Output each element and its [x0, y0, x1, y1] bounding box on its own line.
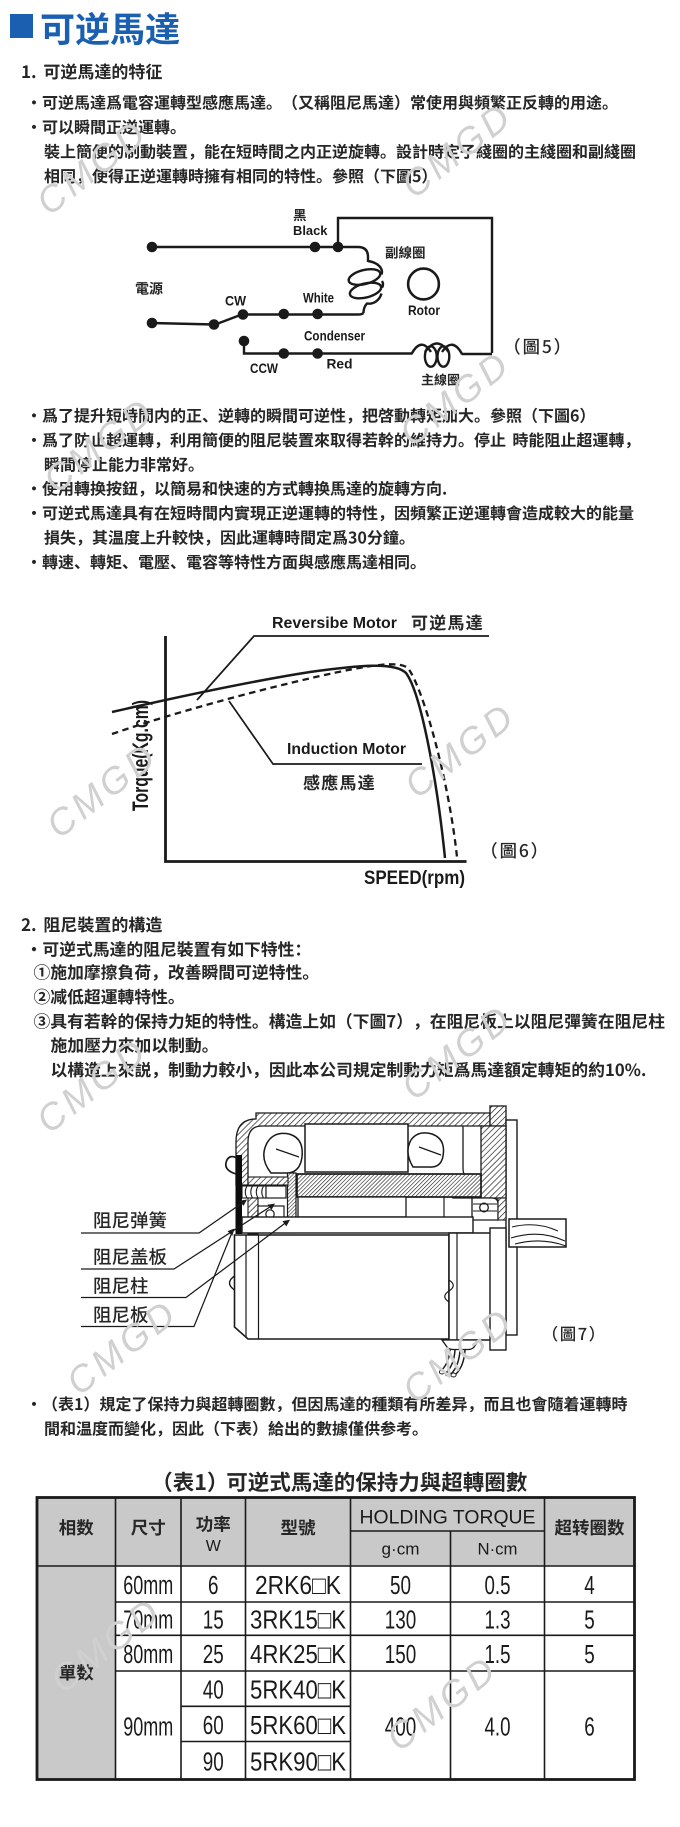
- svg-text:Condenser: Condenser: [304, 329, 366, 344]
- svg-text:1.3: 1.3: [485, 1607, 511, 1635]
- svg-text:25: 25: [203, 1641, 224, 1669]
- svg-text:90mm: 90mm: [123, 1713, 173, 1741]
- svg-text:CMGD: CMGD: [397, 694, 524, 806]
- svg-text:5RK90□K: 5RK90□K: [250, 1749, 346, 1777]
- svg-text:Rotor: Rotor: [408, 302, 440, 318]
- svg-text:6: 6: [208, 1572, 219, 1600]
- svg-text:5RK60□K: 5RK60□K: [250, 1712, 346, 1740]
- svg-text:Induction Motor: Induction Motor: [287, 741, 406, 758]
- svg-text:5RK40□K: 5RK40□K: [250, 1677, 346, 1705]
- svg-text:Black: Black: [293, 223, 328, 238]
- svg-text:4: 4: [584, 1572, 595, 1600]
- svg-text:3RK15□K: 3RK15□K: [250, 1607, 346, 1635]
- svg-text:130: 130: [385, 1607, 417, 1635]
- svg-text:4.0: 4.0: [485, 1713, 511, 1741]
- svg-text:SPEED(rpm): SPEED(rpm): [364, 868, 465, 889]
- svg-text:CW: CW: [225, 293, 247, 309]
- svg-text:6: 6: [584, 1713, 595, 1741]
- svg-text:Reversibe Motor: Reversibe Motor: [272, 615, 397, 632]
- svg-text:60: 60: [203, 1712, 224, 1740]
- svg-text:50: 50: [390, 1572, 411, 1600]
- svg-text:5: 5: [584, 1641, 595, 1669]
- svg-text:5: 5: [584, 1607, 595, 1635]
- svg-text:N·cm: N·cm: [478, 1540, 518, 1559]
- svg-text:g·cm: g·cm: [382, 1540, 420, 1559]
- svg-text:CMGD: CMGD: [36, 389, 163, 501]
- svg-text:HOLDING TORQUE: HOLDING TORQUE: [360, 1508, 536, 1529]
- svg-text:90: 90: [203, 1749, 224, 1777]
- svg-text:White: White: [303, 290, 334, 306]
- svg-text:15: 15: [203, 1607, 224, 1635]
- svg-text:0.5: 0.5: [485, 1572, 511, 1600]
- svg-text:CCW: CCW: [250, 360, 279, 376]
- svg-text:4RK25□K: 4RK25□K: [250, 1641, 346, 1669]
- svg-text:CMGD: CMGD: [394, 996, 521, 1108]
- svg-text:40: 40: [203, 1677, 224, 1705]
- svg-text:Red: Red: [327, 356, 353, 372]
- svg-text:2RK6□K: 2RK6□K: [255, 1572, 341, 1600]
- svg-text:150: 150: [385, 1641, 417, 1669]
- svg-text:W: W: [206, 1538, 222, 1555]
